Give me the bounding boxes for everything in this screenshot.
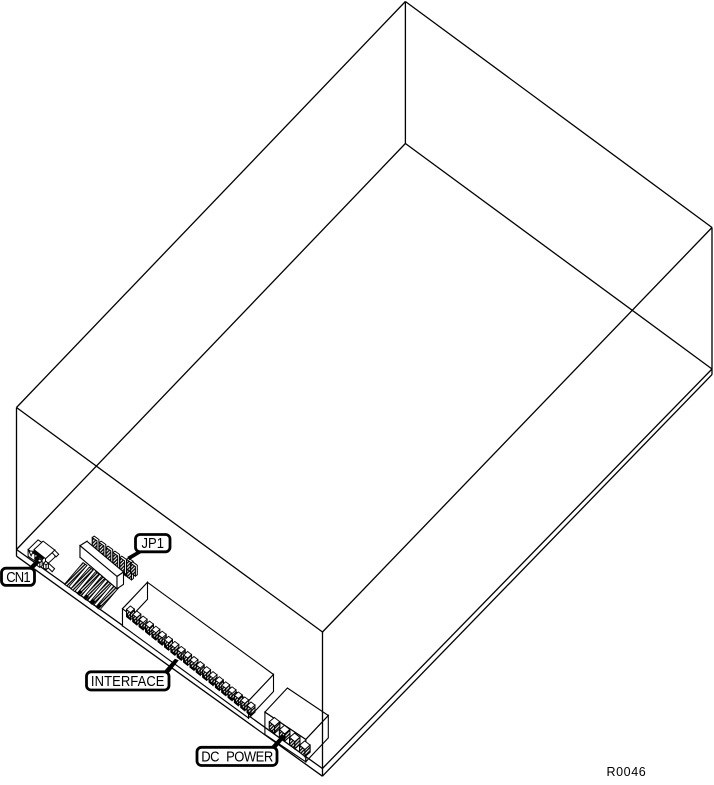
svg-text:JP1: JP1 xyxy=(142,536,164,552)
svg-text:INTERFACE: INTERFACE xyxy=(91,673,165,689)
svg-text:CN1: CN1 xyxy=(6,569,30,585)
svg-text:R0046: R0046 xyxy=(607,765,647,779)
svg-text:DC POWER: DC POWER xyxy=(201,749,273,765)
